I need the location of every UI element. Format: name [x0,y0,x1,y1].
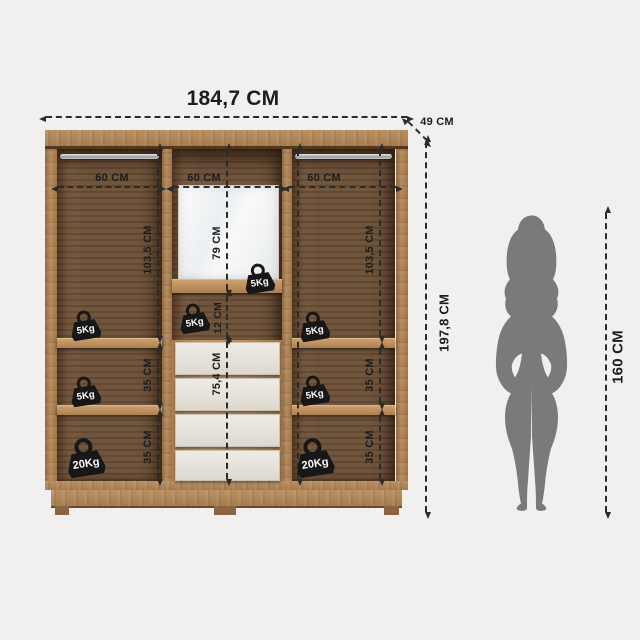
wardrobe-foot-right [384,506,399,515]
person-height-line [605,213,607,512]
drawers-height-line [226,342,228,479]
gap-height-label: 12 CM [212,302,224,334]
right-top-height-label: 103,5 CM [364,225,376,274]
wardrobe-right-side-panel [396,149,408,490]
left-top-height-label: 103,5 CM [142,225,154,274]
partition-left [162,149,172,481]
right-mid-height-label: 35 CM [364,358,376,391]
weight-badge: 5Kg [68,308,102,341]
left-section-width-label: 60 CM [95,172,128,184]
height-dimension-line [425,142,427,512]
hanging-rod-left [60,154,159,159]
weight-badge: 5Kg [68,374,102,407]
height-dimension-label: 197,8 CM [437,294,452,352]
width-dimension-label: 184,7 CM [187,87,280,111]
left-section-width-line [58,186,159,188]
wardrobe-foot-left [55,506,69,515]
right-section-width-label: 60 CM [307,172,340,184]
right-bottom-height-line [379,416,381,479]
mirror-height-label: 79 CM [211,226,223,259]
right-mid-height-line [379,349,381,403]
hanging-rod-right [295,154,392,159]
gap-height-line [226,296,228,338]
depth-dimension-label: 49 CM [420,116,453,128]
wardrobe-dimension-diagram: 184,7 CM 49 CM 197,8 CM 60 CM 60 CM 60 C… [0,0,640,640]
weight-badge: 20Kg [292,435,335,478]
width-dimension-line [46,116,407,118]
weight-badge: 5Kg [177,301,211,334]
left-top-height-line [157,150,159,336]
left-bottom-height-label: 35 CM [142,430,154,463]
weight-badge: 5Kg [297,373,331,406]
left-mid-height-line [157,349,159,403]
weight-badge: 20Kg [63,435,106,478]
right-top-height-line [379,150,381,336]
mirror-height-line [226,150,228,290]
middle-section-width-label: 60 CM [187,172,220,184]
right-bottom-height-label: 35 CM [364,430,376,463]
partition-right [282,149,292,481]
weight-badge: 5Kg [242,261,276,294]
person-silhouette [478,212,588,513]
person-height-label: 160 CM [610,330,627,384]
wardrobe-left-side-panel [45,149,57,490]
drawers-height-label: 75,4 CM [211,353,223,396]
wardrobe-foot-center [214,506,236,515]
left-bottom-height-line [157,416,159,479]
left-mid-height-label: 35 CM [142,358,154,391]
weight-badge: 5Kg [297,309,331,342]
